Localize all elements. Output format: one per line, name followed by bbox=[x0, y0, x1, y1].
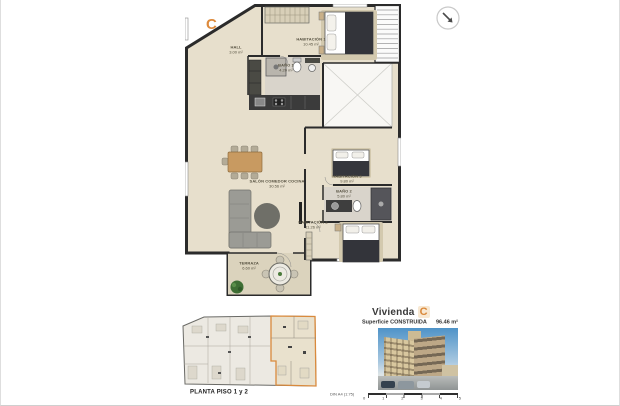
surface-row: Superficie CONSTRUIDA 96.46 m² bbox=[362, 319, 458, 325]
room-label-hall: HALL 3.00 m² bbox=[206, 45, 266, 55]
key-plan-caption: PLANTA PISO 1 y 2 bbox=[190, 388, 248, 395]
scale-label: DIN A4 (1:75) bbox=[330, 392, 354, 397]
stair-core bbox=[375, 6, 400, 63]
room-label-bano-2: BAÑO 2 5.80 m² bbox=[314, 189, 374, 199]
surface-value: 96.46 m² bbox=[436, 319, 458, 325]
photo-car bbox=[417, 381, 430, 388]
room-label-bano-1: BAÑO 1 4.20 m² bbox=[256, 63, 316, 73]
room-label-habitacion-2: HABITACIÓN 2 11.26 m² bbox=[283, 220, 343, 230]
unit-badge: C bbox=[418, 306, 430, 318]
key-plan-drawing bbox=[178, 306, 318, 398]
bed1-icon bbox=[319, 10, 377, 60]
surface-label: Superficie CONSTRUIDA bbox=[362, 319, 427, 325]
scale-bar-numbers: 0 1 2 3 4 5 bbox=[363, 396, 461, 401]
plan-sheet: C HALL 3.00 m² HABITACIÓN 1 10.45 m² BAÑ… bbox=[0, 0, 620, 406]
building-photo bbox=[378, 328, 458, 390]
room-label-habitacion-3: HABITACIÓN 3 9.80 m² bbox=[317, 174, 377, 184]
key-plan-unit-c bbox=[271, 316, 316, 386]
photo-car bbox=[398, 381, 414, 389]
room-label-terraza: TERRAZA 6.60 m² bbox=[219, 261, 279, 271]
wardrobe-icon bbox=[265, 7, 309, 23]
unit-letter: C bbox=[206, 16, 217, 33]
dwelling-label: Vivienda bbox=[372, 307, 415, 318]
north-arrow-icon bbox=[435, 5, 461, 31]
photo-car bbox=[381, 381, 395, 388]
patio-lightwell bbox=[323, 63, 400, 127]
dwelling-title: Vivienda C bbox=[372, 306, 430, 318]
rug-icon bbox=[254, 203, 280, 229]
room-label-salon: SALÓN COMEDOR COCINA 30.56 m² bbox=[247, 179, 307, 189]
photo-building-face-left bbox=[384, 337, 414, 381]
room-label-habitacion-1: HABITACIÓN 1 10.45 m² bbox=[281, 37, 341, 47]
plant-icon bbox=[231, 281, 244, 294]
